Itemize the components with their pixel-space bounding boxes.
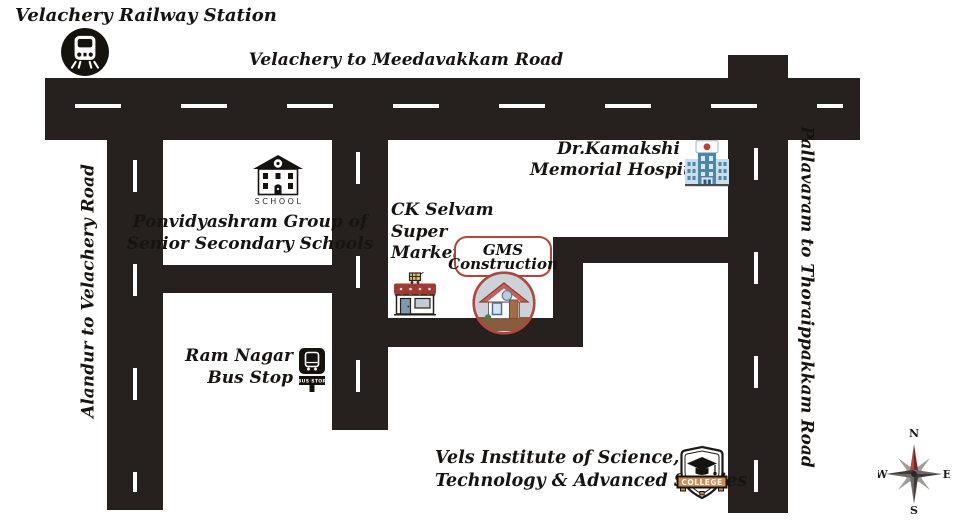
supermarket-label-line1: CK Selvam (391, 200, 494, 222)
compass-rose: N S E W (878, 424, 950, 516)
mid-road-center-line (356, 152, 360, 414)
map-canvas: Velachery Railway Station Velachery to M… (0, 0, 972, 526)
school-label-line2: Senior Secondary Schools (127, 233, 374, 255)
bus-stop-label-line2: Bus Stop (175, 367, 293, 389)
compass-south-label: S (910, 504, 918, 516)
school-icon-caption: SCHOOL (255, 197, 304, 206)
college-label-line2: Technology & Advanced Studies (435, 470, 670, 493)
bus-stop-label: Ram Nagar Bus Stop (175, 345, 293, 389)
gms-house-icon (471, 270, 537, 336)
train-station-icon (60, 27, 110, 77)
right-road-center-line (754, 148, 758, 500)
right-road-label: Pallavaram to Thoraippakkam Road (796, 126, 817, 468)
mid-road (332, 140, 388, 430)
college-label-line1: Vels Institute of Science, (435, 447, 670, 470)
compass-east-label: E (943, 468, 950, 481)
main-road-center-line (75, 104, 843, 108)
compass-north-label: N (909, 427, 919, 440)
hospital-icon (685, 140, 729, 188)
left-road-label: Alandur to Velachery Road (79, 164, 100, 418)
college-badge-text: COLLEGE (681, 478, 722, 487)
left-road-center-line (133, 160, 137, 492)
school-access-road (163, 265, 332, 293)
compass-west-label: W (878, 468, 888, 481)
bus-stop-sign-text: BUS STOP (299, 379, 325, 385)
school-icon (253, 154, 303, 196)
hospital-access-road-upper (553, 237, 728, 263)
railway-station-label: Velachery Railway Station (15, 5, 277, 26)
school-label: Ponvidyashram Group of Senior Secondary … (127, 211, 374, 255)
hospital-label-line1: Dr.Kamakshi (530, 139, 680, 160)
top-road-label: Velachery to Meedavakkam Road (249, 50, 563, 71)
college-icon: COLLEGE (676, 444, 728, 502)
hospital-label-line2: Memorial Hospital (530, 160, 680, 181)
hospital-label: Dr.Kamakshi Memorial Hospital (530, 139, 680, 181)
bus-stop-icon: BUS STOP (299, 348, 325, 392)
gms-label-line2: Construction (448, 257, 558, 271)
bus-stop-label-line1: Ram Nagar (175, 345, 293, 367)
shop-icon (392, 270, 438, 317)
right-road (728, 55, 788, 513)
school-label-line1: Ponvidyashram Group of (127, 211, 374, 233)
college-label: Vels Institute of Science, Technology & … (435, 447, 670, 493)
